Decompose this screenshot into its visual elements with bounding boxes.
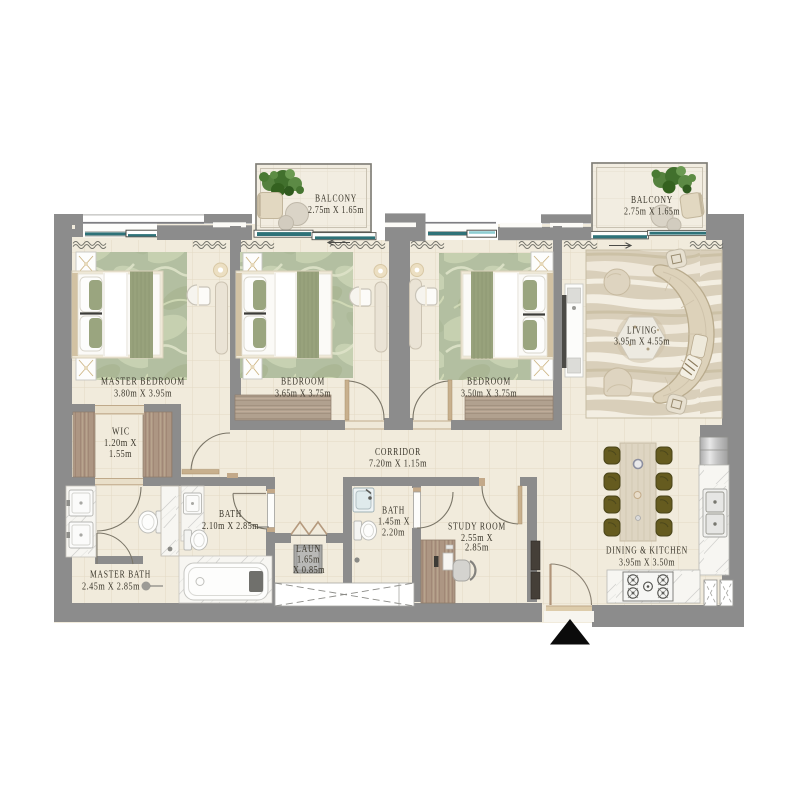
svg-text:WIC: WIC [112,427,130,438]
svg-text:BEDROOM: BEDROOM [281,377,325,388]
svg-text:2.75m X 1.65m: 2.75m X 1.65m [624,207,680,218]
svg-text:1.45m X: 1.45m X [378,517,410,528]
svg-text:7.20m X 1.15m: 7.20m X 1.15m [369,459,427,470]
svg-text:MASTER BATH: MASTER BATH [90,570,151,581]
svg-text:3.50m X 3.75m: 3.50m X 3.75m [461,389,517,400]
svg-text:X 0.85m: X 0.85m [293,565,325,576]
svg-text:BEDROOM: BEDROOM [467,377,511,388]
svg-text:3.80m X 3.95m: 3.80m X 3.95m [114,389,172,400]
svg-text:2.20m: 2.20m [382,528,405,539]
svg-text:BATH: BATH [219,509,242,520]
svg-text:CORRIDOR: CORRIDOR [375,447,421,458]
svg-text:BALCONY: BALCONY [631,195,673,206]
svg-text:3.95m X 4.55m: 3.95m X 4.55m [614,337,670,348]
svg-text:DINING & KITCHEN: DINING & KITCHEN [606,546,688,557]
svg-text:2.45m X 2.85m: 2.45m X 2.85m [82,582,140,593]
svg-text:BATH: BATH [382,506,405,517]
svg-text:2.85m: 2.85m [465,543,489,554]
svg-text:1.55m: 1.55m [109,449,132,460]
svg-text:3.95m X 3.50m: 3.95m X 3.50m [619,558,675,569]
svg-text:1.20m X: 1.20m X [104,438,137,449]
svg-text:2.75m X 1.65m: 2.75m X 1.65m [308,205,364,216]
svg-text:3.65m X 3.75m: 3.65m X 3.75m [275,389,331,400]
svg-text:MASTER BEDROOM: MASTER BEDROOM [101,377,185,388]
svg-text:1.65m: 1.65m [297,555,320,566]
svg-text:STUDY ROOM: STUDY ROOM [448,522,506,533]
svg-text:LIVING: LIVING [627,326,657,337]
svg-text:LAUN: LAUN [296,544,321,555]
svg-text:2.10m X 2.85m: 2.10m X 2.85m [202,521,259,532]
svg-text:BALCONY: BALCONY [315,194,357,205]
